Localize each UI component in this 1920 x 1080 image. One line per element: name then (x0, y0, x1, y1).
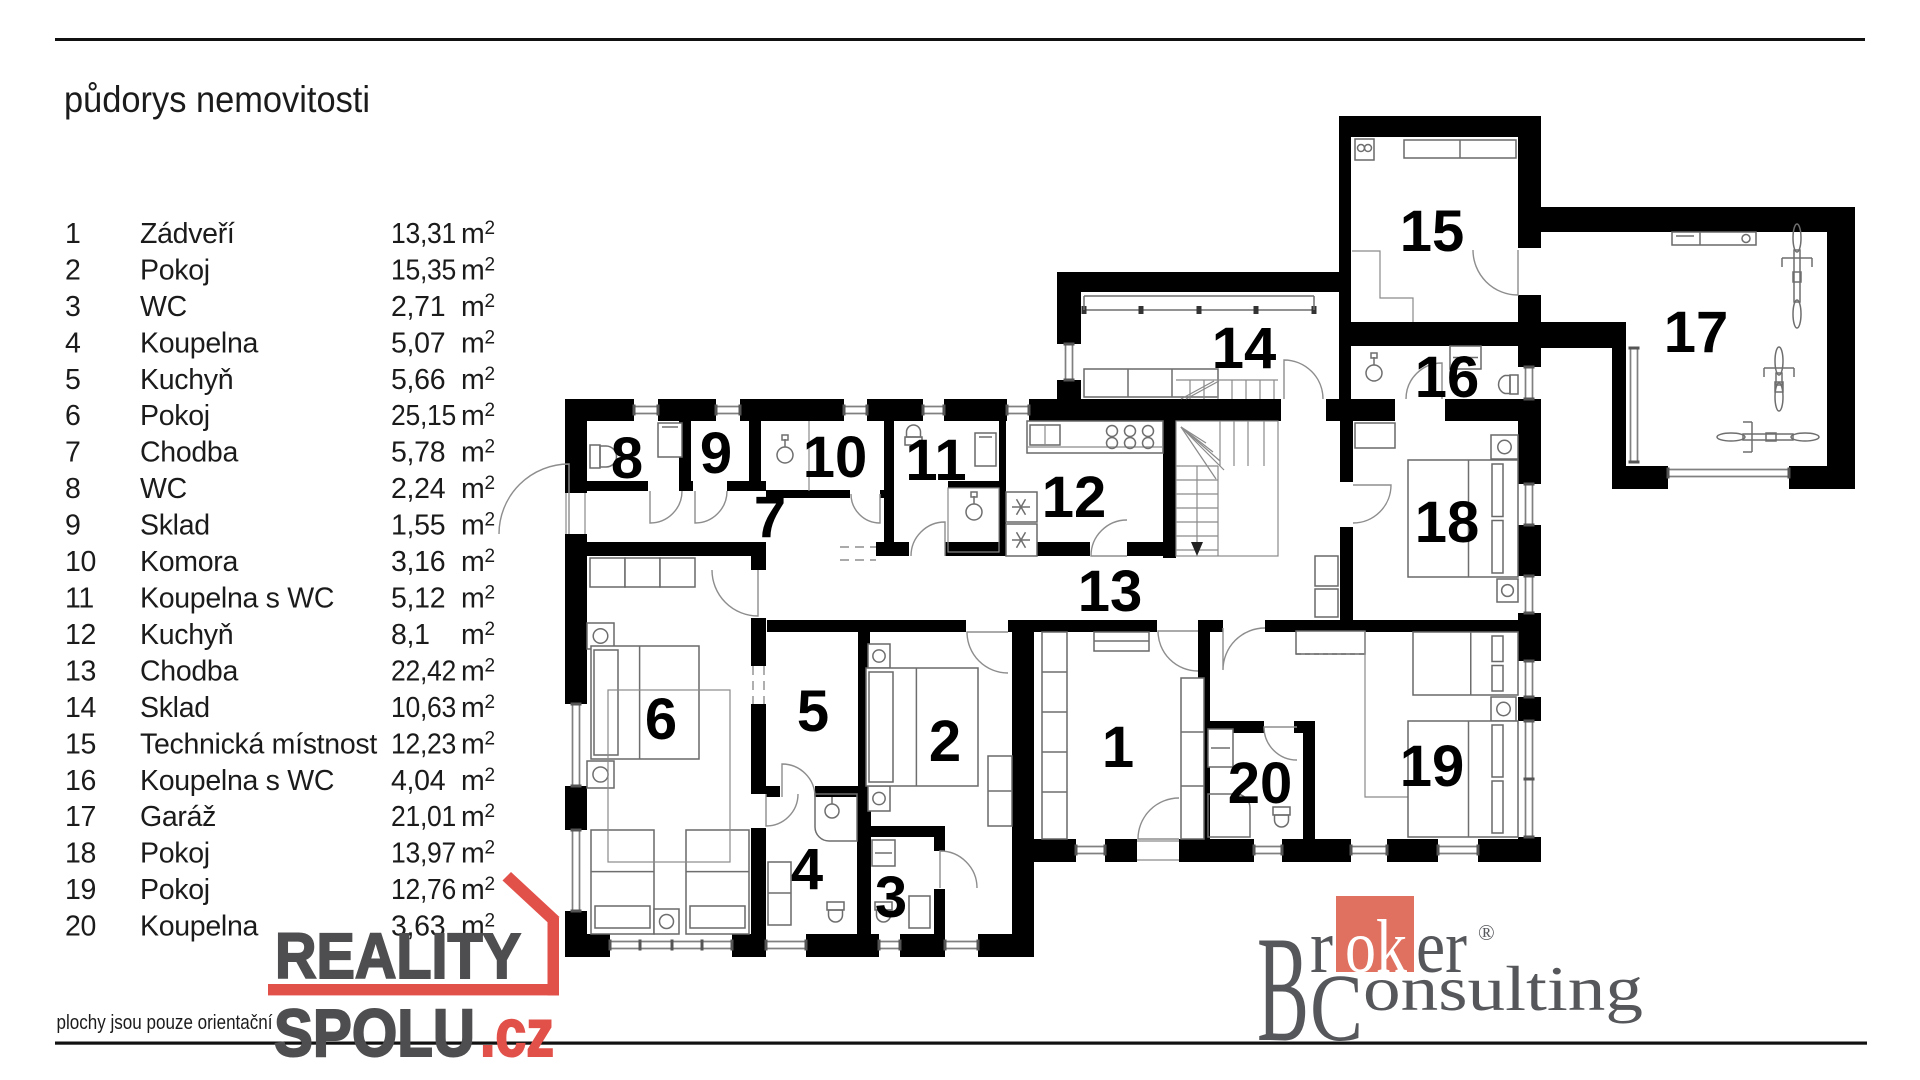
svg-text:13,97: 13,97 (391, 838, 456, 870)
svg-text:3: 3 (65, 291, 81, 323)
svg-text:21,01: 21,01 (391, 801, 456, 833)
svg-text:19: 19 (65, 874, 96, 906)
svg-text:11: 11 (65, 583, 94, 615)
svg-text:10: 10 (803, 425, 868, 490)
svg-text:8: 8 (611, 426, 643, 491)
svg-text:8,1: 8,1 (391, 619, 430, 651)
svg-text:půdorys nemovitosti: půdorys nemovitosti (64, 79, 370, 120)
svg-text:5: 5 (65, 364, 81, 396)
svg-text:15: 15 (65, 728, 96, 760)
svg-text:Pokoj: Pokoj (140, 400, 210, 432)
svg-text:Pokoj: Pokoj (140, 838, 210, 870)
svg-text:Koupelna: Koupelna (140, 327, 258, 359)
svg-text:18: 18 (65, 838, 96, 870)
svg-text:Komora: Komora (140, 546, 238, 578)
svg-text:12,76: 12,76 (391, 874, 456, 906)
svg-text:5,78: 5,78 (391, 437, 445, 469)
svg-text:3: 3 (875, 865, 907, 930)
svg-text:12: 12 (65, 619, 96, 651)
svg-text:Kuchyň: Kuchyň (140, 619, 233, 651)
svg-text:17: 17 (65, 801, 96, 833)
svg-text:Pokoj: Pokoj (140, 874, 210, 906)
svg-text:SPOLU: SPOLU (274, 996, 475, 1071)
svg-text:19: 19 (1400, 734, 1465, 799)
svg-text:Technická místnost: Technická místnost (140, 728, 377, 760)
svg-text:13,31: 13,31 (391, 218, 456, 250)
svg-text:16: 16 (1415, 345, 1480, 410)
svg-text:4: 4 (791, 837, 823, 902)
svg-text:20: 20 (1228, 751, 1293, 816)
svg-text:plochy jsou pouze orientační: plochy jsou pouze orientační (57, 1011, 273, 1034)
svg-text:Chodba: Chodba (140, 437, 238, 469)
svg-text:15: 15 (1400, 199, 1465, 264)
svg-text:4: 4 (65, 327, 81, 359)
svg-text:.cz: .cz (480, 996, 554, 1071)
svg-text:Koupelna s WC: Koupelna s WC (140, 583, 334, 615)
svg-text:onsulting: onsulting (1363, 953, 1643, 1024)
svg-text:16: 16 (65, 765, 96, 797)
svg-text:20: 20 (65, 911, 96, 943)
svg-text:WC: WC (140, 473, 187, 505)
svg-text:5,12: 5,12 (391, 583, 445, 615)
svg-text:2,71: 2,71 (391, 291, 445, 323)
svg-text:2,24: 2,24 (391, 473, 446, 505)
svg-text:13: 13 (1078, 559, 1143, 624)
svg-text:8: 8 (65, 473, 81, 505)
svg-text:15,35: 15,35 (391, 254, 456, 286)
svg-text:12,23: 12,23 (391, 728, 456, 760)
svg-text:22,42: 22,42 (391, 655, 456, 687)
svg-text:B: B (1257, 905, 1309, 1073)
svg-text:9: 9 (65, 510, 81, 542)
svg-text:3,16: 3,16 (391, 546, 445, 578)
svg-text:WC: WC (140, 291, 187, 323)
svg-text:5,66: 5,66 (391, 364, 445, 396)
svg-text:10,63: 10,63 (391, 692, 456, 724)
svg-text:12: 12 (1042, 465, 1107, 530)
svg-text:6: 6 (645, 687, 677, 752)
svg-text:4,04: 4,04 (391, 765, 446, 797)
svg-text:5: 5 (797, 679, 829, 744)
svg-text:14: 14 (1212, 316, 1277, 381)
svg-text:7: 7 (754, 485, 786, 550)
svg-text:25,15: 25,15 (391, 400, 456, 432)
svg-text:9: 9 (700, 421, 732, 486)
svg-text:17: 17 (1664, 300, 1729, 365)
svg-text:Kuchyň: Kuchyň (140, 364, 233, 396)
svg-text:Sklad: Sklad (140, 692, 210, 724)
svg-text:Zádveří: Zádveří (140, 218, 235, 250)
svg-text:13: 13 (65, 655, 96, 687)
svg-text:Garáž: Garáž (140, 801, 216, 833)
svg-text:18: 18 (1415, 490, 1480, 555)
svg-text:Koupelna: Koupelna (140, 911, 258, 943)
svg-text:REALITY: REALITY (275, 920, 521, 992)
svg-text:Koupelna s WC: Koupelna s WC (140, 765, 334, 797)
svg-text:5,07: 5,07 (391, 327, 445, 359)
svg-text:C: C (1310, 954, 1363, 1061)
svg-text:2: 2 (65, 254, 81, 286)
svg-text:11: 11 (905, 428, 966, 493)
svg-text:10: 10 (65, 546, 96, 578)
svg-text:14: 14 (65, 692, 97, 724)
svg-text:Sklad: Sklad (140, 510, 210, 542)
svg-text:6: 6 (65, 400, 81, 432)
svg-text:1: 1 (1102, 715, 1134, 780)
svg-text:1: 1 (65, 218, 81, 250)
svg-text:Pokoj: Pokoj (140, 254, 210, 286)
svg-text:®: ® (1478, 920, 1495, 945)
svg-text:Chodba: Chodba (140, 655, 238, 687)
svg-text:2: 2 (929, 709, 961, 774)
svg-text:7: 7 (65, 437, 81, 469)
svg-text:1,55: 1,55 (391, 510, 445, 542)
